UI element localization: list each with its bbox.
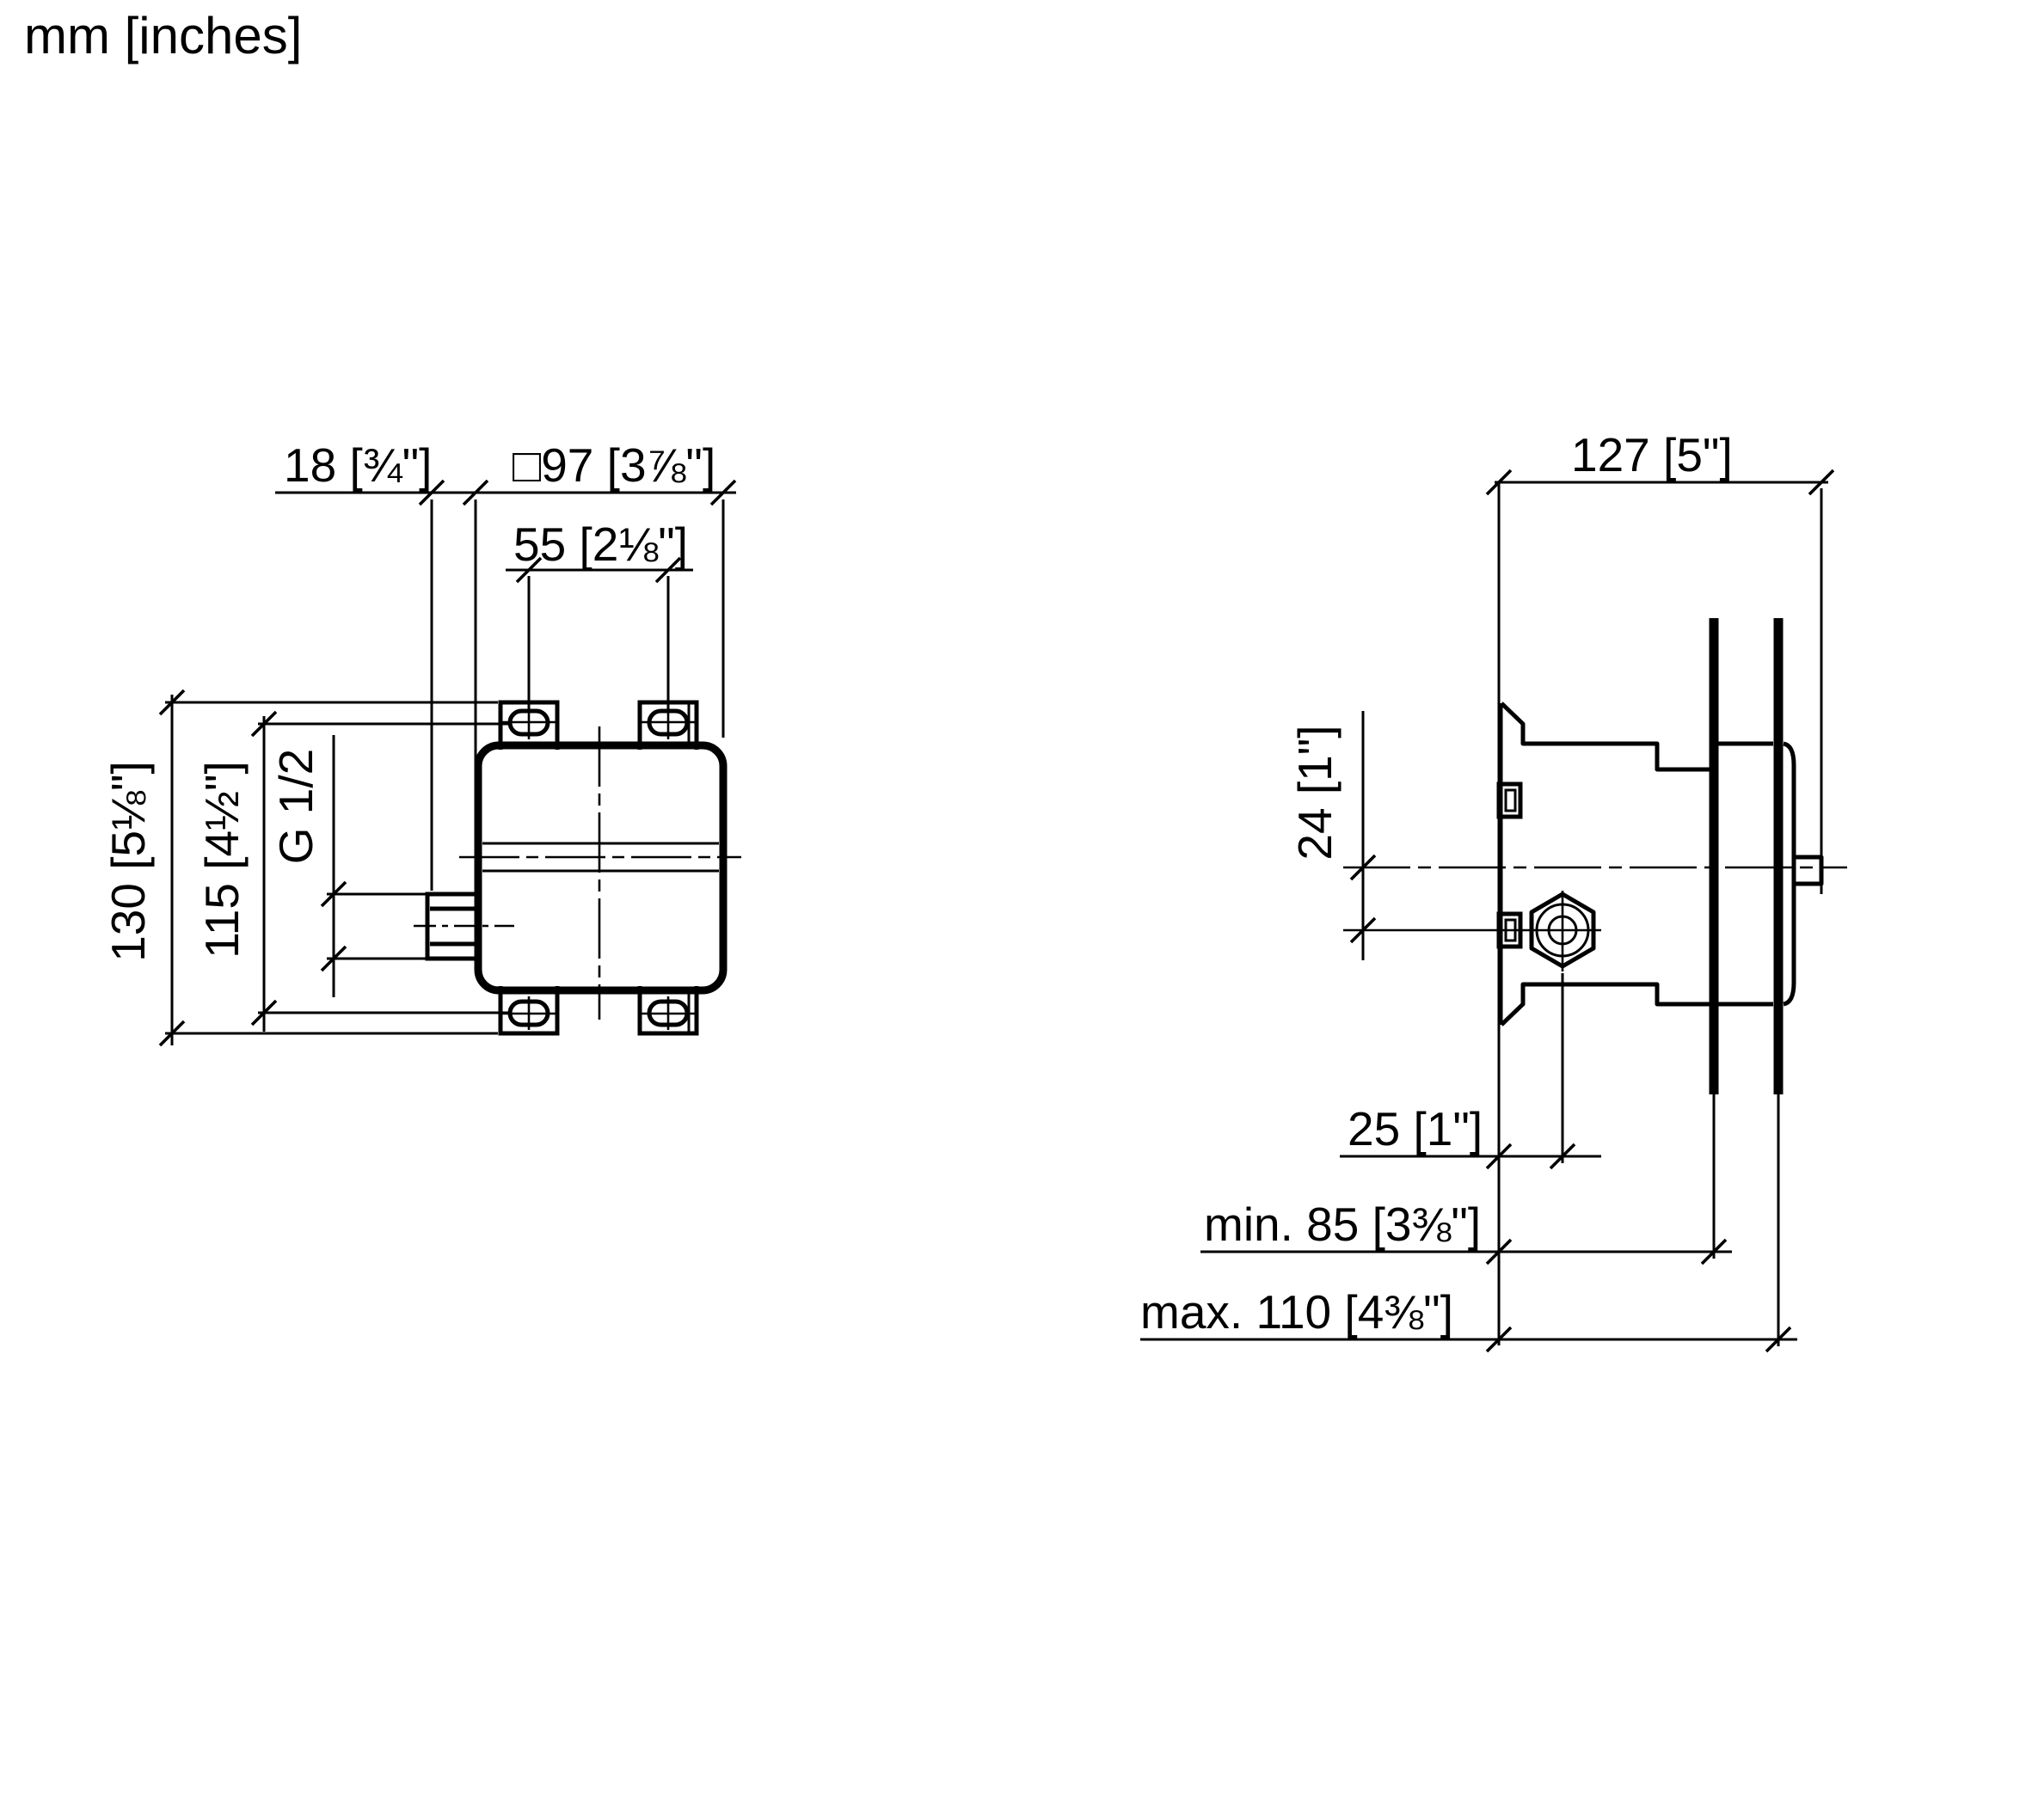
dim-55-label: 55 [2⅛"] — [513, 518, 688, 571]
dim-25-label: 25 [1"] — [1348, 1102, 1483, 1155]
dim-130-label: 130 [5⅛"] — [101, 761, 155, 962]
technical-drawing: mm [inches] — [0, 0, 2020, 1820]
thread-label: G 1/2 — [269, 749, 322, 865]
units-label: mm [inches] — [24, 7, 302, 64]
dim-127-label: 127 [5"] — [1571, 428, 1733, 481]
dim-24-label: 24 [1"] — [1288, 725, 1342, 860]
drawing-page: mm [inches] — [0, 0, 2020, 1820]
dim-max110-label: max. 110 [4⅜"] — [1140, 1285, 1453, 1339]
dim-115-label: 115 [4½"] — [195, 761, 249, 959]
dim-18-label: 18 [¾"] — [284, 438, 432, 492]
dim-97-label: □97 [3⅞"] — [513, 438, 715, 492]
dim-min85-label: min. 85 [3⅜"] — [1204, 1198, 1481, 1251]
